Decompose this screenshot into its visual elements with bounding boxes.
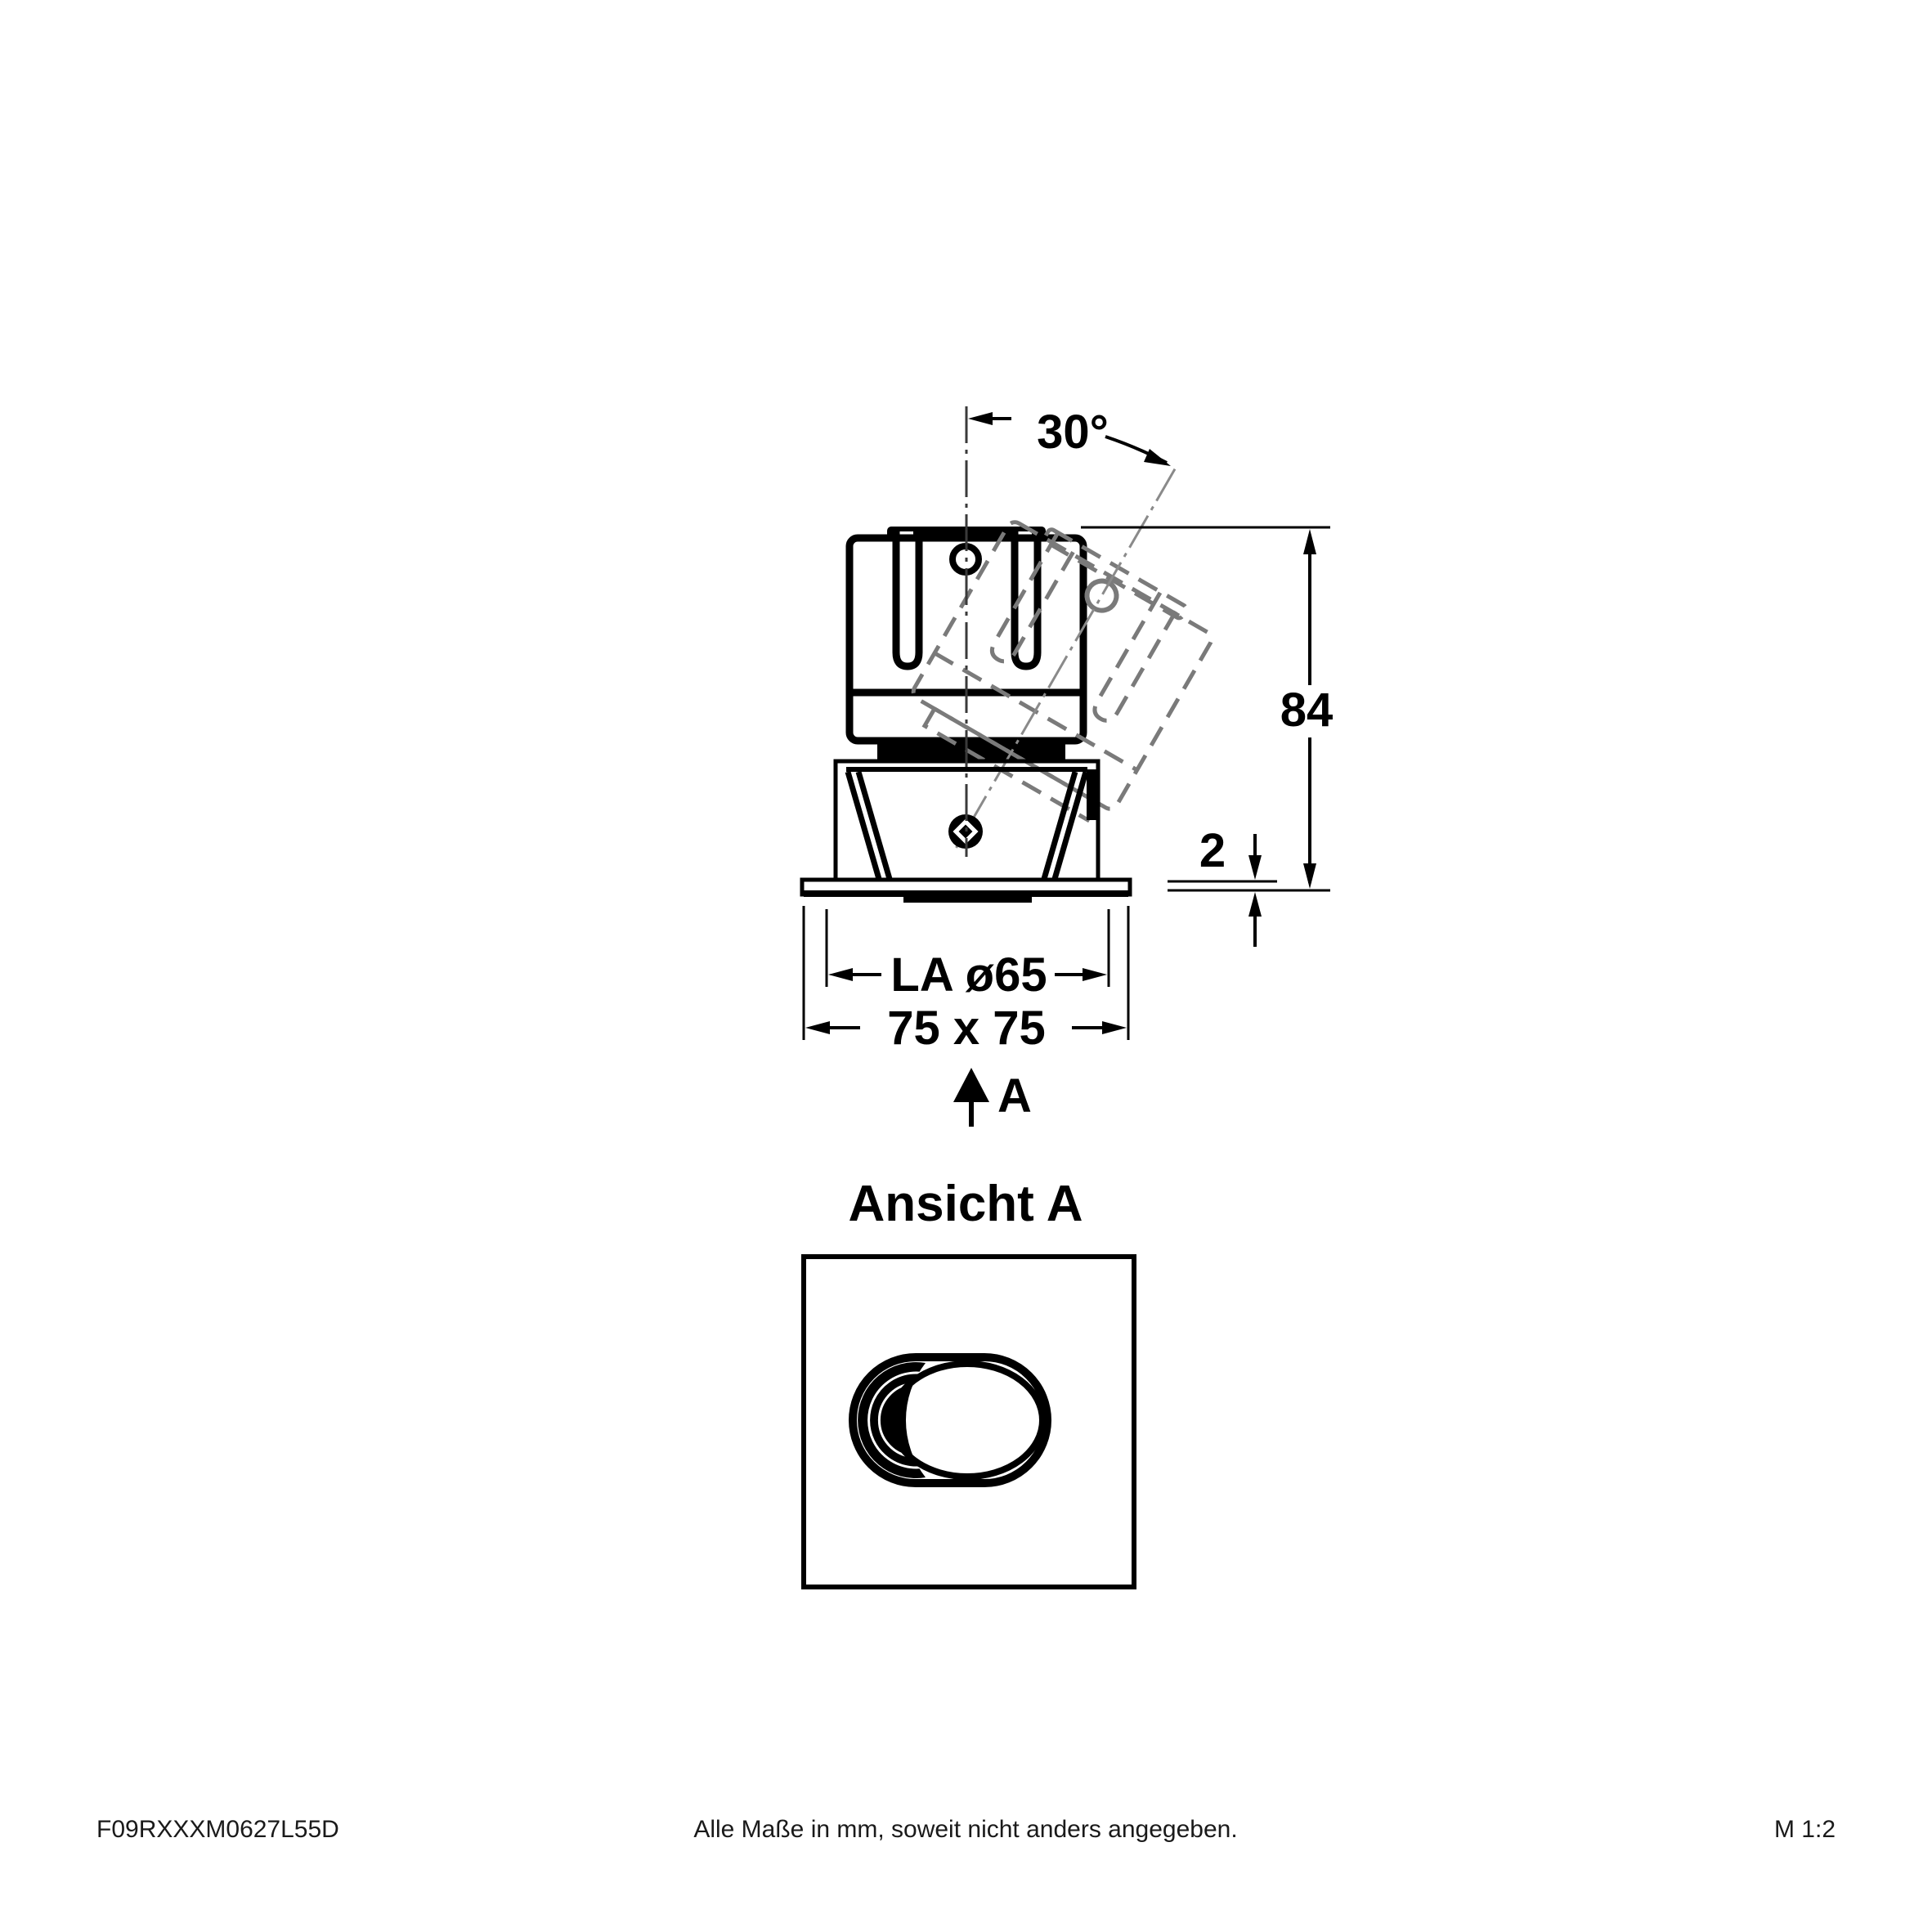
- height-arrowhead-bottom: [1303, 863, 1316, 889]
- module-slot-left: [896, 527, 919, 666]
- view-a-title: Ansicht A: [848, 1176, 1083, 1232]
- overall-label: 75 x 75: [887, 1002, 1046, 1055]
- mounting-flange: [802, 880, 1130, 903]
- ghost-center-line: [957, 469, 1176, 848]
- dim-angle: 30°: [968, 406, 1171, 466]
- overall-arrowhead-left: [805, 1021, 830, 1034]
- flange-arrowhead-down: [1248, 855, 1262, 880]
- angle-label: 30°: [1037, 406, 1109, 459]
- dim-cutout: LA ø65: [827, 909, 1109, 1002]
- flange-arrowhead-up: [1248, 892, 1262, 917]
- flange-label: 2: [1199, 824, 1226, 877]
- cutout-arrowhead-left: [828, 968, 853, 981]
- view-arrow-label: A: [997, 1069, 1032, 1123]
- footer-scale: M 1:2: [1774, 1816, 1836, 1843]
- view-direction-indicator: A: [953, 1068, 1032, 1127]
- footer-article-code: F09RXXXM0627L55D: [96, 1816, 339, 1843]
- dim-flange: 2: [1168, 824, 1330, 947]
- trim-clip: [1087, 769, 1097, 820]
- cutout-label: LA ø65: [890, 948, 1047, 1002]
- angle-arrowhead-left: [968, 412, 993, 425]
- aperture-lamp: [892, 1364, 1042, 1477]
- footer-note: Alle Maße in mm, soweit nicht anders ang…: [693, 1816, 1237, 1843]
- cutout-arrowhead-right: [1083, 968, 1107, 981]
- height-label: 84: [1280, 684, 1334, 737]
- height-arrowhead-top: [1303, 529, 1316, 554]
- flange-center-shadow: [903, 894, 1032, 903]
- technical-drawing: 30° 84 2 LA ø65 75: [0, 0, 1932, 1932]
- view-a: Ansicht A: [804, 1176, 1134, 1587]
- view-arrow-triangle: [953, 1068, 989, 1102]
- ghost-bottom-band: [925, 709, 1097, 820]
- angle-arc-arrowhead: [1144, 449, 1171, 466]
- footer: F09RXXXM0627L55D Alle Maße in mm, soweit…: [96, 1816, 1836, 1843]
- overall-arrowhead-right: [1102, 1021, 1127, 1034]
